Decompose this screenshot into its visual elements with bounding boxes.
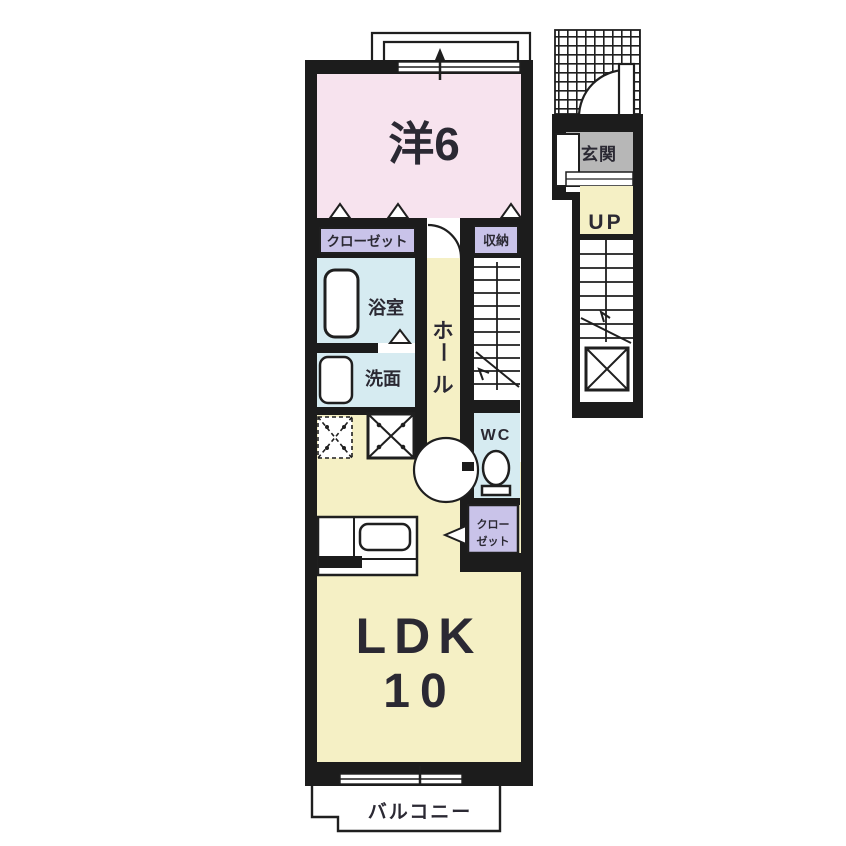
wc-label: WC: [481, 427, 512, 444]
bay-window-outer: [372, 33, 530, 63]
entrance-label: 玄関: [581, 144, 617, 164]
hall-label: ホ ー ル: [431, 320, 454, 397]
bath-door-gap: [378, 343, 415, 353]
ldk-label: LDK: [356, 608, 483, 664]
outer-wall-left: [305, 60, 317, 786]
closet-label: クローゼット: [327, 233, 408, 249]
staircase-inner: [474, 258, 520, 413]
western-room-label: 洋6: [388, 118, 460, 170]
shaft-box-icon: [586, 348, 628, 390]
tower-wall: [572, 200, 580, 418]
bath-label: 浴室: [368, 297, 404, 318]
closet-small-label-1: クロー: [477, 518, 510, 531]
kitchen-sink-icon: [360, 524, 410, 550]
washer-pan-right: [368, 414, 414, 458]
tower-wall: [633, 114, 643, 418]
floor-plan-page: 洋6 クローゼット 収納 浴室 洗面 ホ ー ル WC クロー ゼット LDK …: [0, 0, 846, 846]
closet-small-label-2: ゼット: [477, 534, 510, 548]
floor-plan: 洋6 クローゼット 収納 浴室 洗面 ホ ー ル WC クロー ゼット LDK …: [0, 0, 846, 846]
washer-pan-left: [318, 417, 352, 458]
main-unit: 洋6 クローゼット 収納 浴室 洗面 ホ ー ル WC クロー ゼット LDK …: [305, 33, 533, 831]
hall-left-wall: [415, 218, 427, 462]
tower-wall: [572, 402, 643, 418]
outer-wall-right: [521, 60, 533, 786]
hall-ldk-wall-stub: [462, 462, 474, 471]
toilet-icon: [482, 451, 510, 495]
tower-wall: [580, 234, 633, 240]
up-label: UP: [588, 211, 623, 234]
svg-text:ー: ー: [431, 342, 454, 363]
kitchen-counter: [318, 517, 417, 575]
bay-window-inner: [384, 42, 518, 63]
svg-text:ル: ル: [433, 374, 454, 397]
staircase-tower: [580, 240, 633, 343]
bathtub-icon: [325, 270, 358, 337]
entrance-door-leaf: [619, 64, 634, 117]
entrance-tower: 玄関 UP: [552, 30, 643, 418]
ldk-size-label: 10: [383, 665, 456, 718]
svg-text:ホ: ホ: [433, 320, 454, 343]
washroom-label: 洗面: [365, 368, 401, 389]
storage-label: 収納: [483, 233, 509, 248]
tower-wall: [552, 192, 580, 200]
sink-icon: [320, 357, 352, 403]
balcony-label: バルコニー: [368, 801, 473, 823]
